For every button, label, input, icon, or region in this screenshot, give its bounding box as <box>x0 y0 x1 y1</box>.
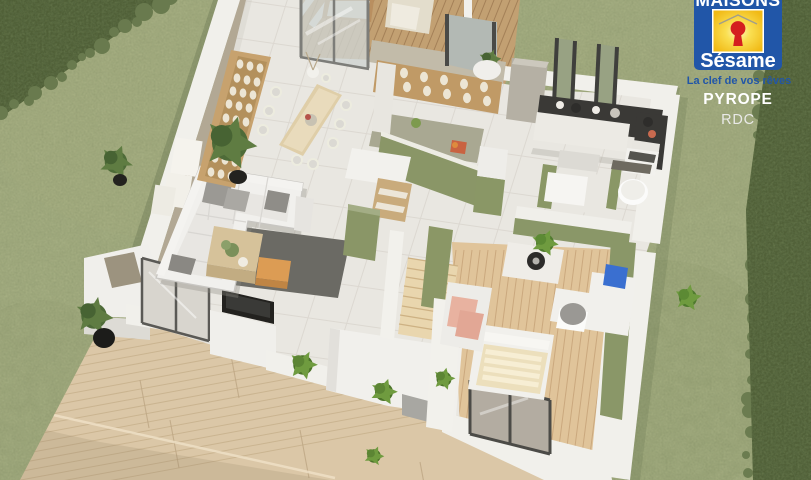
svg-text:La clef de vos rêves: La clef de vos rêves <box>687 75 792 87</box>
svg-text:Sésame: Sésame <box>700 50 776 72</box>
svg-text:MAISONS: MAISONS <box>695 0 780 10</box>
svg-text:PYROPE: PYROPE <box>703 91 772 108</box>
svg-text:RDC: RDC <box>721 112 755 128</box>
